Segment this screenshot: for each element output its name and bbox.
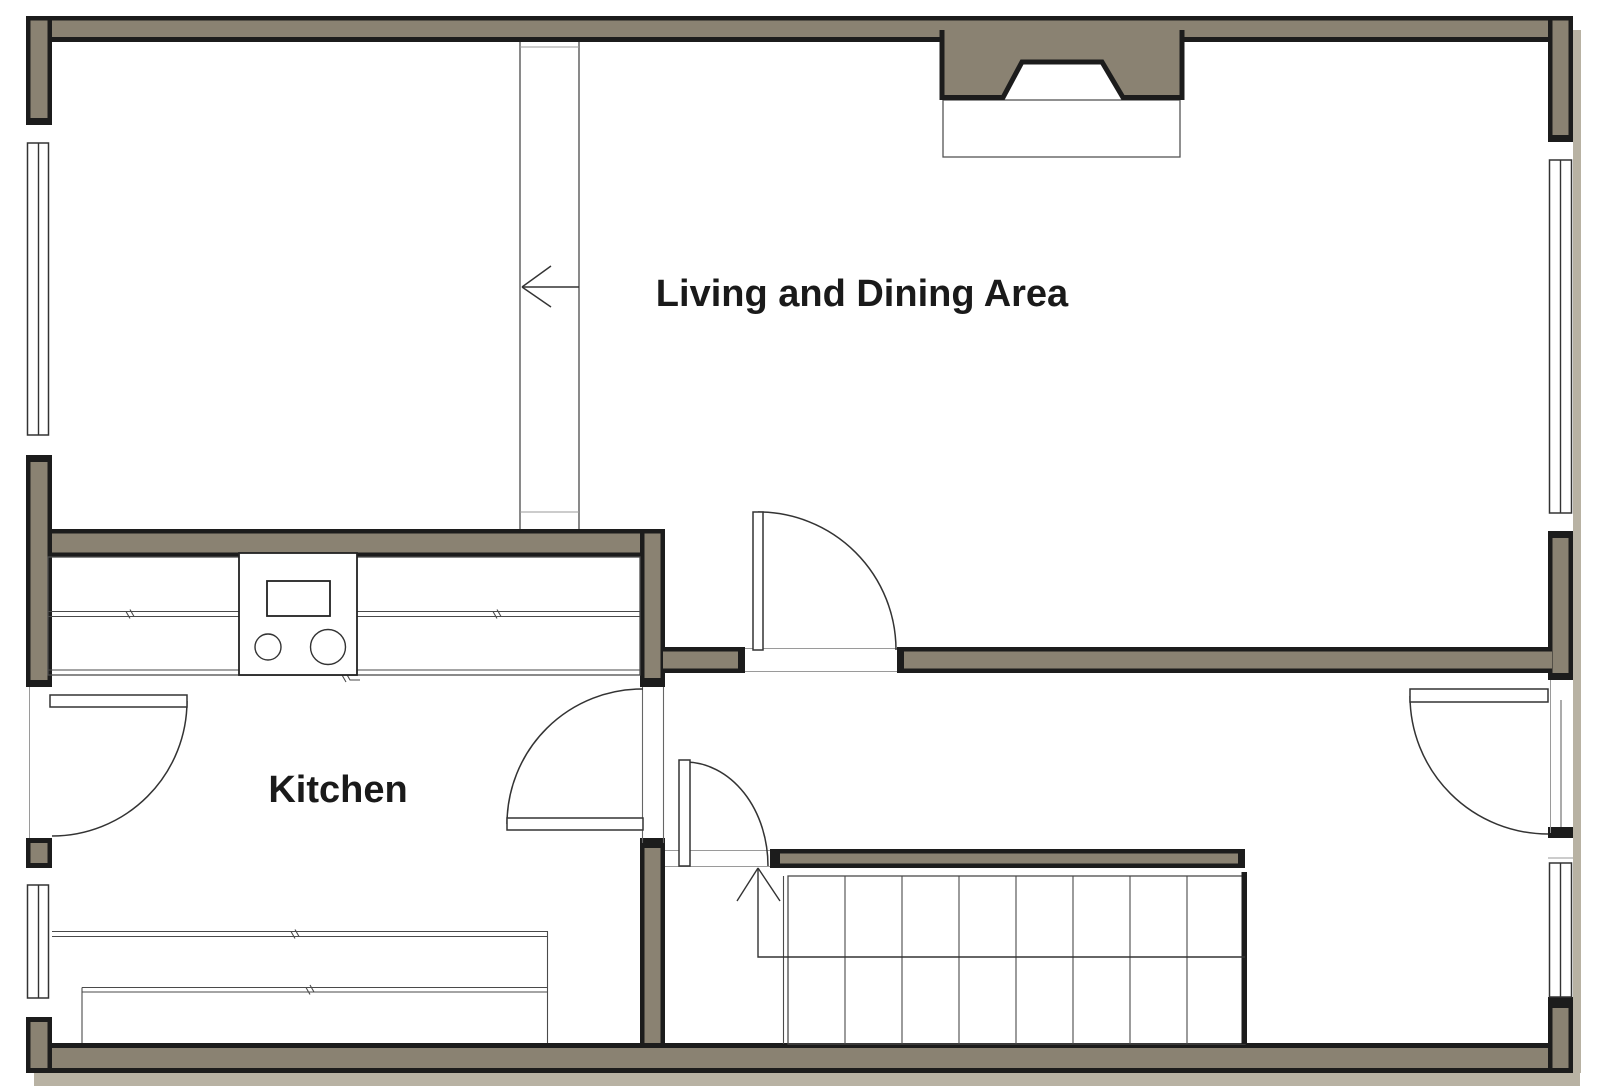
fireplace [942,30,1182,157]
door-kitchen-hall [507,687,664,843]
break-symbol-icon [281,930,324,995]
window-right-lower [1548,838,1573,997]
stairs-up-arrow-icon [737,868,1245,957]
door-leaf [1410,689,1548,702]
chimney-icon [942,30,1182,98]
floor-plan-drawing: Living and Dining Area Kitchen [0,0,1600,1091]
wall-hall-divider-right-fill [904,652,1552,669]
wall-left-pier-fill [31,843,48,863]
stairs-right-edge [1242,872,1248,1044]
wall-top-fill [26,21,1573,38]
room-label-living-dining: Living and Dining Area [656,273,1069,315]
door-leaf [50,695,187,707]
shadow-bottom [34,1073,1580,1086]
arrow-left-icon [522,266,579,307]
wall-right-doorcap [1548,827,1573,838]
stove-vent [267,581,330,616]
stairs-treads [845,876,1187,1044]
wall-kitchen-east-upper-fill [645,534,661,679]
shadow-right [1573,30,1581,1073]
door-swing-arc [507,689,643,824]
wall-left-seg2-fill [31,462,48,680]
wall-right-seg2-fill [1553,538,1569,673]
wall-bottom-fill [26,1048,1573,1068]
door-leaf [679,760,690,866]
door-leaf [507,818,643,830]
staircase [737,868,1247,1044]
wall-left-seg3-fill [31,1022,48,1068]
window-left-lower [26,868,52,1017]
door-swing-arc [52,701,187,836]
door-swing-arc [758,512,896,650]
wall-kitchen-east-lower-fill [645,848,661,1043]
wall-hall-divider-left-fill [663,652,738,669]
wall-left-seg1-fill [31,21,48,119]
kitchen-counter-bottom [52,930,548,1044]
door-hall-exterior [1410,680,1561,834]
door-living-room [745,512,897,672]
living-room-channel [520,42,579,529]
door-leaf [753,512,763,650]
room-label-kitchen: Kitchen [268,769,407,811]
wall-kitchen-divider-fill [52,534,663,553]
door-swing-arc [1410,696,1548,834]
wall-right-seg1-fill [1553,21,1569,136]
door-kitchen-exterior [30,687,188,838]
door-stairs [665,760,770,867]
fireplace-hearth [943,100,1180,157]
wall-right-seg3-fill [1553,1008,1569,1068]
stove-icon [239,553,357,675]
floor-plan: Living and Dining Area Kitchen [0,0,1600,1091]
window-left-upper [26,125,52,455]
window-right-upper [1548,142,1573,531]
wall-stairs-top-fill [780,854,1238,864]
